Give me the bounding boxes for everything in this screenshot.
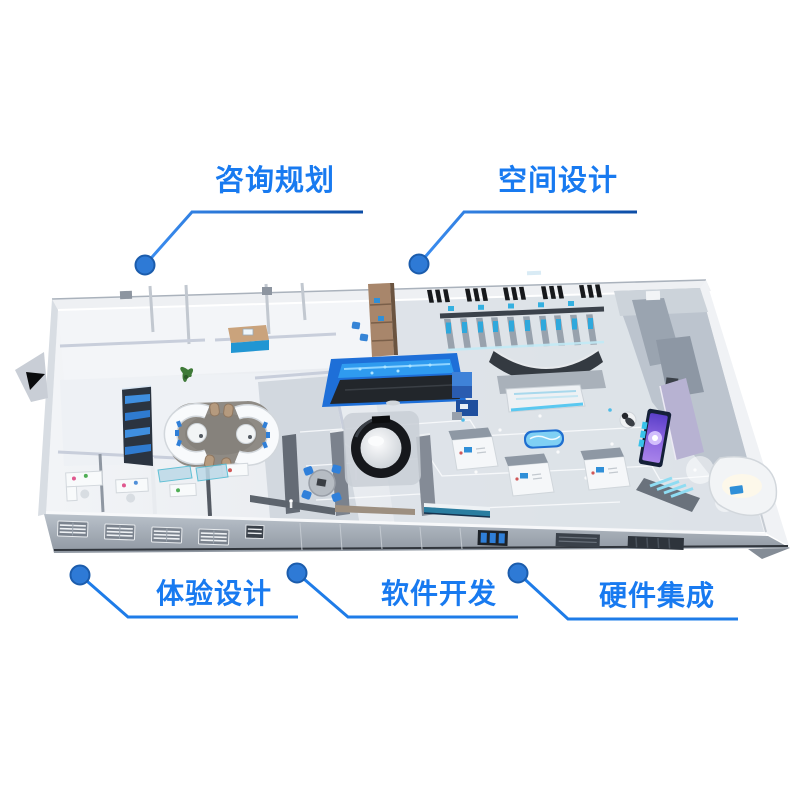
leader-space-design: [410, 212, 638, 274]
floorplan-render: [0, 0, 800, 800]
leader-dot: [288, 564, 307, 583]
leader-consulting: [136, 212, 364, 275]
dome-theater: [343, 411, 422, 488]
leader-dot: [136, 256, 155, 275]
label-experience-design: 体验设计: [156, 580, 272, 608]
leader-dot: [509, 564, 528, 583]
meeting-pod: [167, 400, 275, 471]
building: [15, 271, 790, 559]
immersive-room: [322, 353, 466, 407]
welcome-counter: [228, 325, 269, 353]
label-space-design: 空间设计: [498, 167, 618, 196]
glow-table: [524, 429, 565, 449]
label-software-development: 软件开发: [381, 580, 497, 608]
label-consulting-planning: 咨询规划: [215, 167, 335, 196]
infographic-canvas: 咨询规划 空间设计 体验设计 软件开发 硬件集成: [0, 0, 800, 800]
shelf-unit: [122, 386, 153, 466]
label-hardware-integration: 硬件集成: [599, 582, 715, 610]
leader-dot: [410, 255, 429, 274]
leader-dot: [71, 566, 90, 585]
visitor-stool: [620, 412, 636, 428]
